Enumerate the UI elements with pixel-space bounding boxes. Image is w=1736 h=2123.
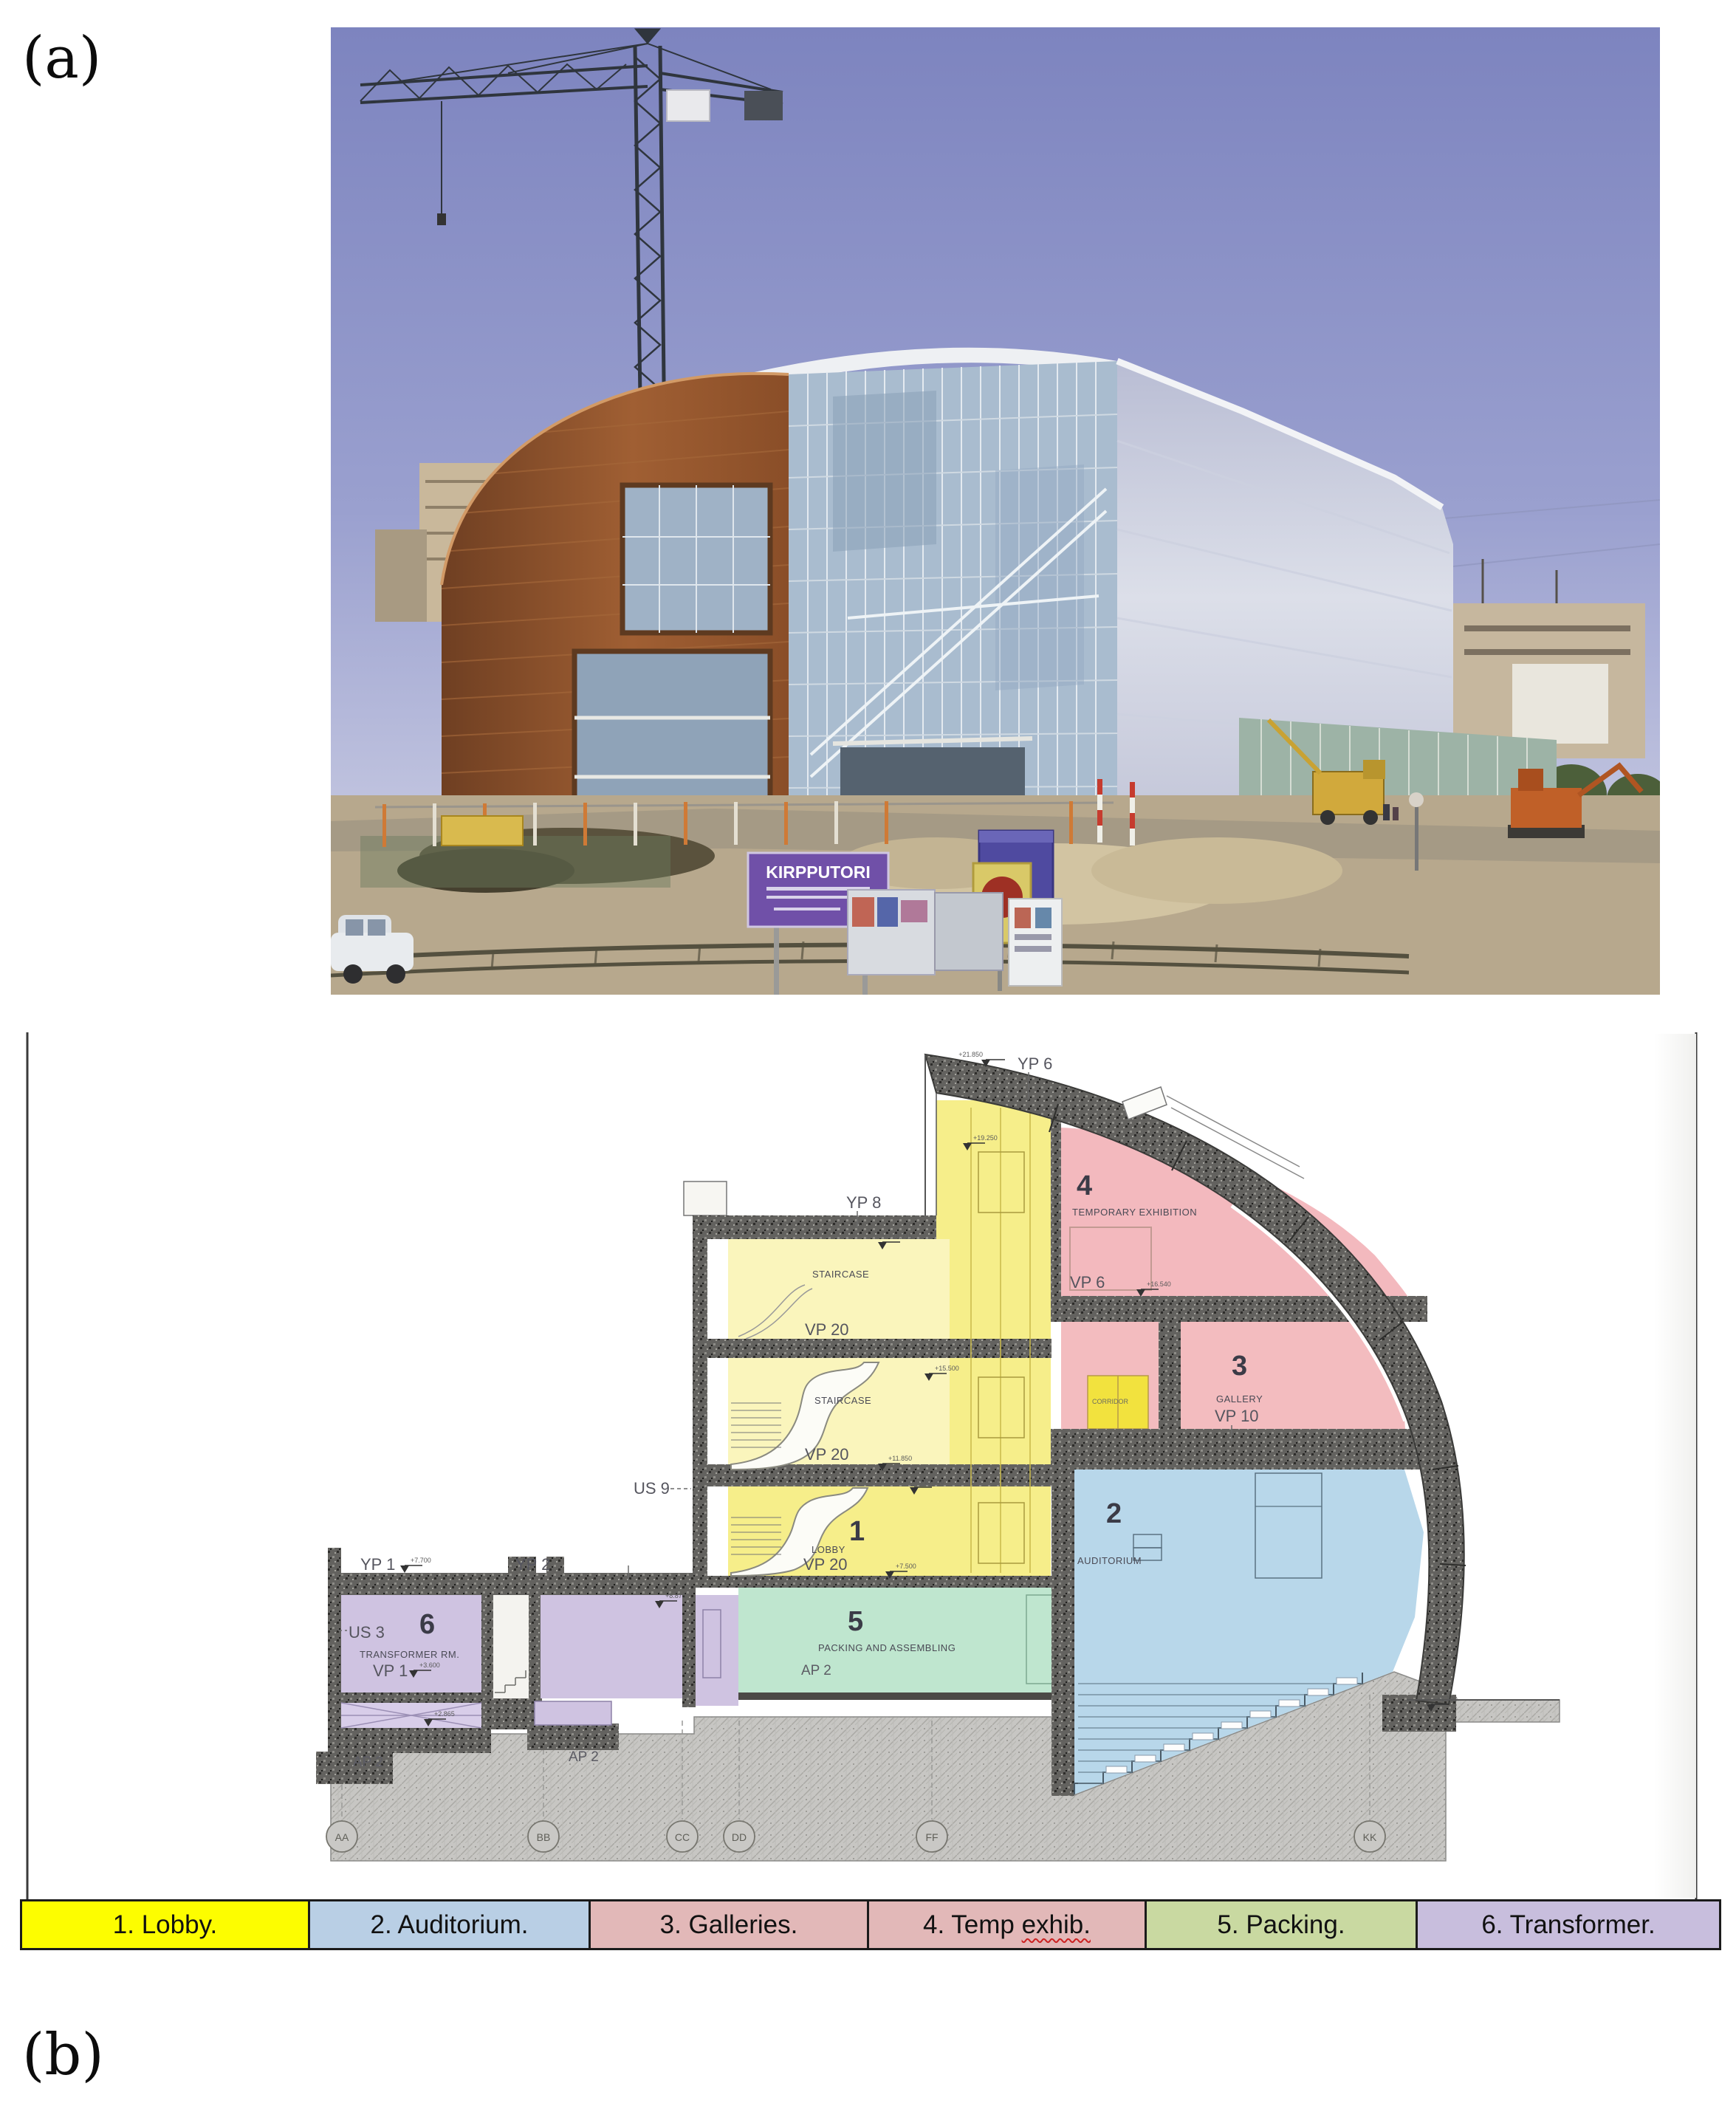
legend: 1. Lobby. 2. Auditorium. 3. Galleries. 4… <box>20 1899 1721 1950</box>
room-4-number: 4 <box>1077 1170 1092 1201</box>
legend-label: 4. Temp <box>923 1910 1022 1940</box>
elevation-text: +3.600 <box>419 1661 440 1669</box>
legend-label: 3. Galleries. <box>660 1910 798 1940</box>
basement-stair-shaft <box>493 1595 529 1698</box>
grid-bubble-dd: DD <box>732 1831 747 1843</box>
basement-right-shaft <box>696 1595 738 1706</box>
label-yp2: YP 2 <box>515 1555 550 1574</box>
legend-label: 1. Lobby. <box>113 1910 217 1940</box>
room-5-name: PACKING AND ASSEMBLING <box>818 1642 956 1653</box>
label-vp6: VP 6 <box>1070 1273 1105 1292</box>
room-6-name: TRANSFORMER RM. <box>360 1649 459 1660</box>
label-ap2-room5: AP 2 <box>801 1663 831 1678</box>
elevation-text: +16.540 <box>1147 1280 1171 1288</box>
label-us9: US 9 <box>634 1479 670 1498</box>
grid-bubble-cc: CC <box>675 1831 690 1843</box>
figure-page: (a) <box>0 0 1736 2123</box>
legend-item-auditorium: 2. Auditorium. <box>310 1901 591 1948</box>
staircase-upper-label: STAIRCASE <box>812 1269 869 1280</box>
label-yp8: YP 8 <box>846 1193 881 1212</box>
staircase-mid-label: STAIRCASE <box>814 1395 871 1406</box>
label-vp10: VP 10 <box>1215 1407 1259 1425</box>
room-5-number: 5 <box>848 1606 863 1637</box>
room-1-name: LOBBY <box>812 1544 845 1555</box>
label-ap2-mid: AP 2 <box>569 1749 599 1765</box>
legend-item-temp-exhib: 4. Temp exhib. <box>869 1901 1147 1948</box>
legend-item-transformer: 6. Transformer. <box>1418 1901 1719 1948</box>
elevation-text: +10.900 <box>920 1478 944 1486</box>
grid-bubble-ff: FF <box>925 1831 938 1843</box>
room-6-transformer <box>341 1595 481 1698</box>
label-yp6: YP 6 <box>1018 1054 1052 1073</box>
elevation-text: +7.500 <box>896 1563 916 1570</box>
elevation-text: +8.875 <box>665 1592 686 1599</box>
room-3-name: GALLERY <box>1216 1393 1263 1405</box>
label-vp20-lobby: VP 20 <box>803 1555 848 1574</box>
legend-item-packing: 5. Packing. <box>1147 1901 1418 1948</box>
elevation-text: +7.700 <box>411 1557 431 1564</box>
legend-label-misspelled: exhib. <box>1022 1910 1091 1940</box>
legend-item-lobby: 1. Lobby. <box>22 1901 310 1948</box>
elevation-text: +2.865 <box>434 1710 455 1718</box>
room-1-number: 1 <box>849 1516 865 1547</box>
scan-page-edge <box>1654 1034 1696 1898</box>
legend-item-galleries: 3. Galleries. <box>591 1901 869 1948</box>
label-yp1: YP 1 <box>360 1555 395 1574</box>
grid-bubble-bb: BB <box>537 1831 551 1843</box>
basement-mid-room <box>541 1595 682 1698</box>
room-2-number: 2 <box>1106 1498 1122 1529</box>
room-2-name: AUDITORIUM <box>1077 1555 1142 1566</box>
corridor-label: CORRIDOR <box>1092 1398 1128 1405</box>
label-us3: US 3 <box>349 1623 385 1642</box>
label-vp20-upper: VP 20 <box>805 1320 849 1339</box>
panel-b-label: (b) <box>22 2022 104 2088</box>
label-vp20-mid: VP 20 <box>805 1445 849 1464</box>
room-5-packing <box>738 1586 1069 1694</box>
grid-bubble-kk: KK <box>1363 1831 1377 1843</box>
room-3-number: 3 <box>1232 1351 1247 1382</box>
section-drawing: AA BB CC DD FF KK <box>0 0 1736 2123</box>
grid-bubble-aa: AA <box>335 1831 349 1843</box>
label-vp1: VP 1 <box>373 1661 408 1680</box>
elevation-text: +6.700 <box>1437 1695 1458 1703</box>
label-ap2-left: AP 2 <box>353 1755 383 1770</box>
elevation-text: +15.500 <box>935 1365 959 1372</box>
room-4-name: TEMPORARY EXHIBITION <box>1072 1207 1197 1218</box>
legend-label: 6. Transformer. <box>1481 1910 1655 1940</box>
elevation-text: +19.250 <box>973 1134 998 1142</box>
elevation-text: +18.715 <box>888 1233 913 1241</box>
room-6-number: 6 <box>419 1609 435 1640</box>
legend-label: 5. Packing. <box>1217 1910 1345 1940</box>
elevation-text: +11.850 <box>888 1455 912 1462</box>
legend-label: 2. Auditorium. <box>371 1910 529 1940</box>
elevation-text: +21.850 <box>958 1051 983 1058</box>
staircase-tower <box>684 1100 1056 1588</box>
